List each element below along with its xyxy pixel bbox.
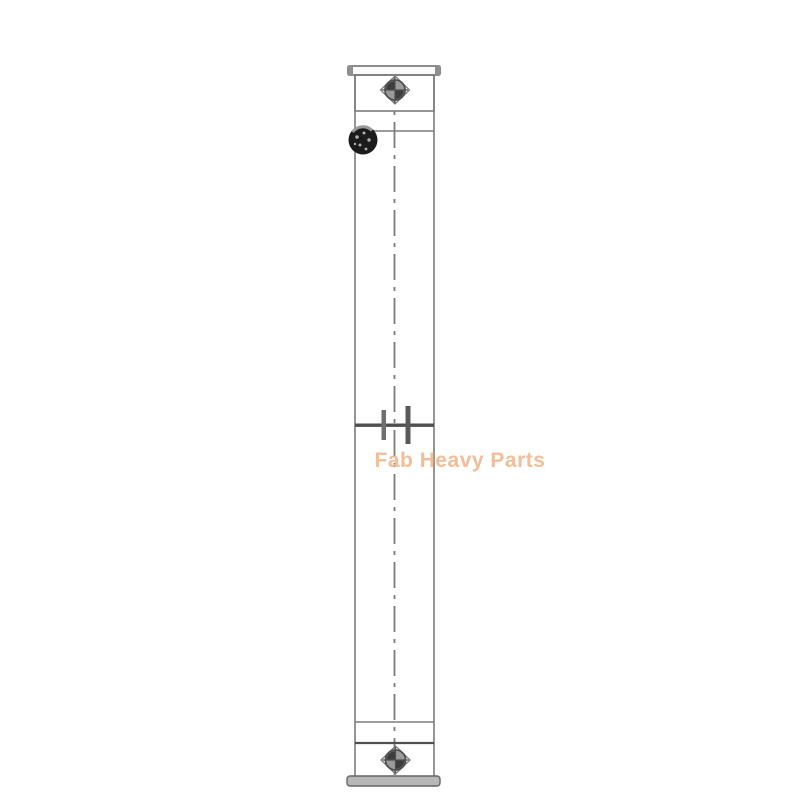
product-image: Fab Heavy Parts	[0, 0, 800, 800]
bolt-head-icon	[381, 76, 410, 104]
part-drawing: Fab Heavy Parts	[0, 0, 800, 800]
watermark-text: Fab Heavy Parts	[375, 449, 546, 472]
bolt-head-icon	[381, 746, 410, 774]
seam-fitting-left	[382, 410, 387, 440]
top-cap-plate	[348, 66, 440, 75]
bottom-cap-plate	[347, 776, 440, 786]
seam-fitting-right	[406, 406, 411, 444]
filler-plug-icon	[349, 126, 378, 155]
